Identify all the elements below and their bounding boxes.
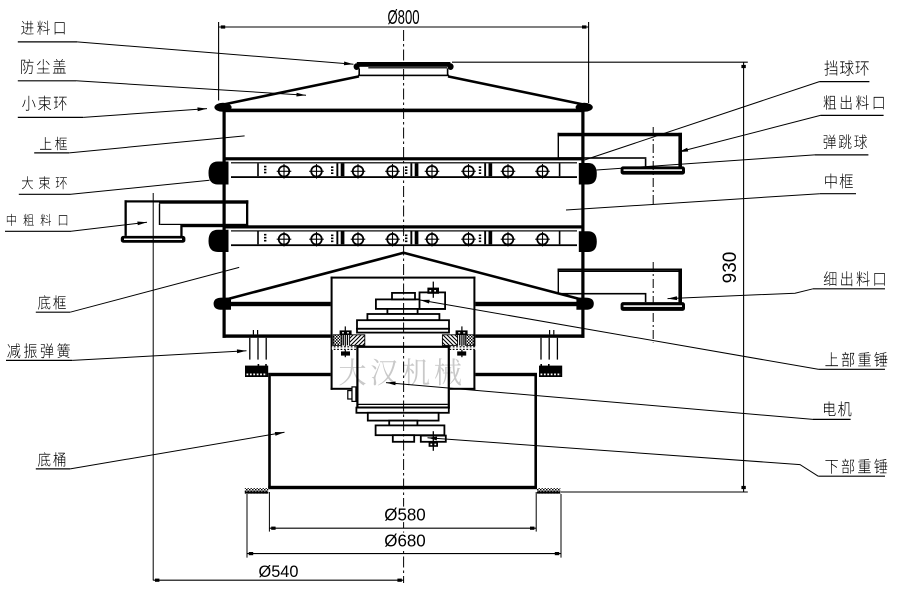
svg-text:Ø680: Ø680 bbox=[384, 530, 425, 550]
svg-text:Ø800: Ø800 bbox=[387, 5, 419, 29]
svg-text:Ø580: Ø580 bbox=[384, 504, 425, 524]
svg-text:Ø540: Ø540 bbox=[259, 561, 299, 580]
svg-text:930: 930 bbox=[720, 252, 741, 284]
